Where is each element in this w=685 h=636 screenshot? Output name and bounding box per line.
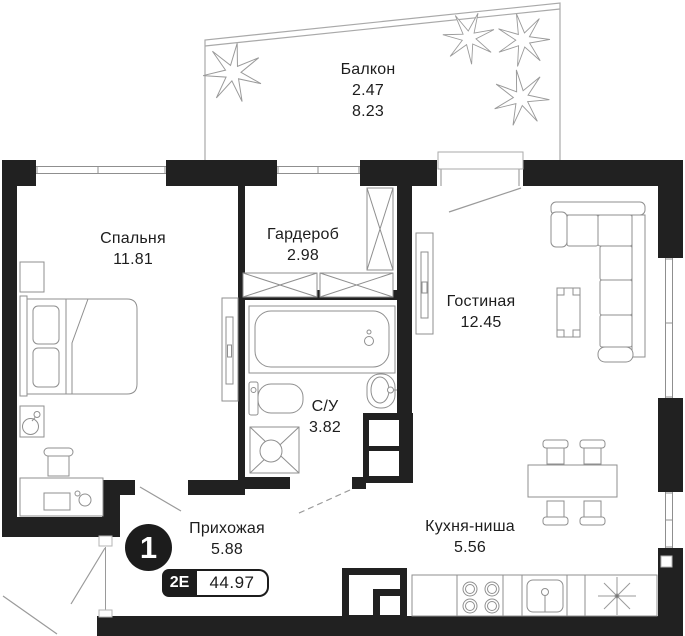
room-area: 5.88 (189, 539, 265, 560)
room-label-bathroom: С/У 3.82 (309, 396, 341, 438)
unit-number: 1 (140, 530, 157, 566)
room-area: 3.82 (309, 417, 341, 438)
room-area: 11.81 (100, 249, 166, 270)
room-label-balcony: Балкон 2.47 8.23 (341, 59, 396, 122)
washing-machine-icon (250, 427, 299, 473)
room-area: 2.98 (267, 245, 339, 266)
room-name: Балкон (341, 59, 396, 80)
room-label-living: Гостиная 12.45 (447, 291, 516, 333)
coffee-table-icon (557, 288, 580, 337)
room-area: 12.45 (447, 312, 516, 333)
room-area: 2.47 (341, 80, 396, 101)
room-name: Гардероб (267, 224, 339, 245)
floor-lamp-icon (20, 406, 44, 437)
tv-stand-icon (416, 233, 433, 334)
room-area-full: 8.23 (341, 101, 396, 122)
room-label-hallway: Прихожая 5.88 (189, 518, 265, 560)
toilet-icon (249, 382, 303, 415)
room-label-kitchen: Кухня-ниша 5.56 (425, 516, 515, 558)
bathroom-sink-icon (367, 374, 397, 408)
vent-shaft-inner-white (380, 596, 400, 615)
door-swing (3, 188, 521, 634)
bedroom-dresser-icon (222, 298, 238, 401)
bed-icon (20, 296, 137, 396)
unit-area-badge: 2Е 44.97 (162, 569, 269, 597)
room-name: Кухня-ниша (425, 516, 515, 537)
nightstand-icon (20, 262, 44, 292)
floorplan: Балкон 2.47 8.23 Спальня 11.81 Гардероб … (0, 0, 685, 636)
room-label-bedroom: Спальня 11.81 (100, 228, 166, 270)
room-area: 5.56 (425, 537, 515, 558)
bathtub-icon (249, 306, 395, 373)
room-name: Прихожая (189, 518, 265, 539)
room-label-wardrobe: Гардероб 2.98 (267, 224, 339, 266)
balcony-door-sill (438, 152, 523, 169)
room-name: С/У (309, 396, 341, 417)
room-name: Спальня (100, 228, 166, 249)
unit-layout-type: 2Е (162, 569, 197, 597)
dining-table-icon (528, 465, 617, 497)
desk-icon (20, 478, 103, 516)
unit-total-area: 44.97 (197, 569, 269, 597)
kitchen-sink-icon (527, 580, 563, 612)
unit-number-badge: 1 (125, 524, 172, 571)
room-name: Гостиная (447, 291, 516, 312)
sofa-icon (551, 202, 645, 362)
desk-chair-icon (44, 448, 73, 476)
